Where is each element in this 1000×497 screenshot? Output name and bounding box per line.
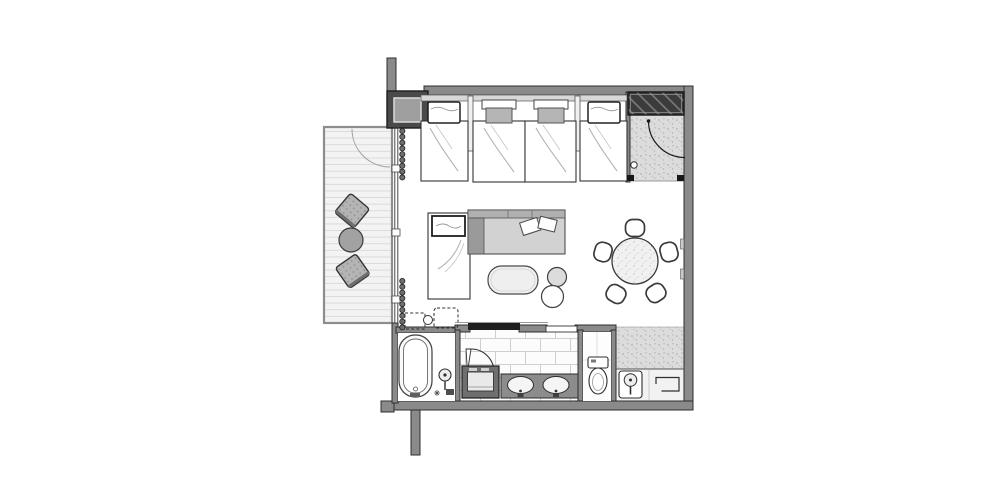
bed-2 bbox=[473, 100, 525, 182]
dining-chair bbox=[592, 241, 614, 264]
toilet-room bbox=[583, 332, 611, 401]
wall-notch bbox=[681, 239, 685, 249]
pillow bbox=[428, 102, 460, 123]
entry-lower-floor bbox=[616, 327, 684, 369]
threshold-block bbox=[677, 175, 684, 181]
party-wall-stub-bottom bbox=[411, 410, 420, 455]
wall-bath-left bbox=[392, 323, 398, 403]
bed-4 bbox=[580, 102, 627, 181]
pocket-door-panel bbox=[546, 326, 577, 332]
laundry-cabinet bbox=[462, 366, 499, 398]
sofa-back bbox=[468, 210, 565, 218]
door-stop-knob bbox=[631, 162, 637, 168]
entry-closet bbox=[628, 92, 684, 115]
overhead-shelf-items bbox=[405, 308, 458, 329]
dining-set bbox=[592, 220, 679, 307]
window-mullion bbox=[392, 296, 400, 303]
vanity-counter bbox=[501, 374, 578, 398]
bed-3 bbox=[525, 100, 576, 182]
window-mullion bbox=[392, 165, 400, 172]
balcony-deck bbox=[324, 127, 392, 323]
dining-chair bbox=[658, 241, 679, 264]
dining-table bbox=[612, 238, 658, 284]
bed-divider bbox=[468, 96, 473, 151]
bed-cushion bbox=[538, 108, 564, 123]
toilet bbox=[588, 357, 608, 394]
threshold-block bbox=[627, 175, 634, 181]
bathroom bbox=[398, 333, 455, 401]
wall-bottom bbox=[394, 401, 693, 410]
bed-cushion bbox=[486, 108, 512, 123]
door-hinge bbox=[647, 119, 651, 123]
coffee-table bbox=[488, 266, 538, 294]
sofa-side bbox=[468, 218, 484, 254]
daybed bbox=[428, 213, 470, 299]
pillow bbox=[588, 102, 620, 123]
faucet bbox=[518, 394, 524, 398]
party-wall-stub-top bbox=[387, 58, 396, 91]
curtain-top bbox=[400, 128, 405, 180]
dining-chair bbox=[643, 281, 668, 306]
curtain-bottom bbox=[400, 278, 405, 330]
floor-plan-canvas bbox=[0, 0, 1000, 497]
wall-div-bath-washroom bbox=[455, 330, 460, 401]
balcony-table bbox=[339, 228, 363, 252]
pouf-large bbox=[542, 286, 564, 308]
balcony bbox=[324, 127, 392, 323]
sliding-door-panel bbox=[468, 323, 520, 330]
wall-right bbox=[684, 86, 693, 410]
faucet bbox=[553, 394, 559, 398]
wall-seg-b bbox=[519, 325, 547, 332]
floor-plan-drawing bbox=[0, 0, 1000, 497]
bed-1 bbox=[421, 102, 468, 181]
entry-upper-floor bbox=[628, 115, 684, 181]
dining-chair bbox=[626, 220, 645, 237]
bathtub-faucet bbox=[410, 393, 420, 397]
sofa bbox=[468, 210, 565, 254]
wall-notch bbox=[681, 269, 685, 279]
sliding-glass-window bbox=[392, 127, 400, 323]
hand-basin bbox=[619, 371, 642, 398]
wall-div-washroom-toilet bbox=[578, 330, 583, 401]
headboard-ledge bbox=[421, 95, 627, 101]
bath-fixture bbox=[446, 389, 454, 395]
window-mullion bbox=[392, 229, 400, 236]
dining-chair bbox=[604, 282, 629, 306]
wall-div-toilet-entry bbox=[611, 330, 616, 401]
pouf-small bbox=[548, 268, 567, 287]
flush-button bbox=[591, 360, 596, 363]
